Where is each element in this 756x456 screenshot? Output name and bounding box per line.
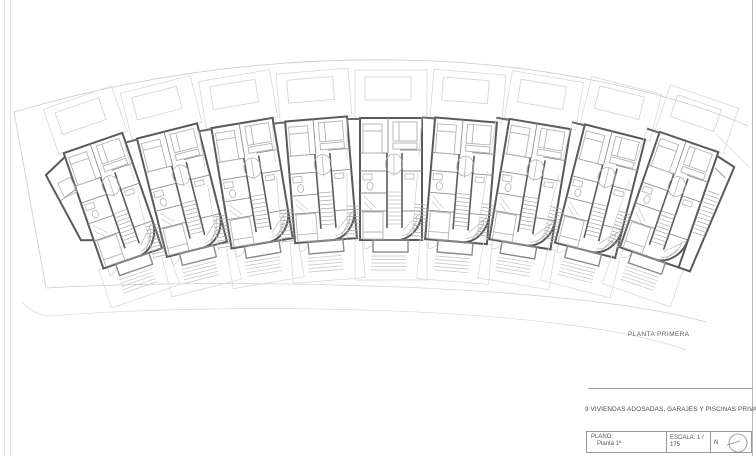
drawing-sheet: PLANTA PRIMERA 9 VIVIENDAS ADOSADAS, GAR… <box>0 0 756 456</box>
site-boundary-right-edge <box>716 134 750 168</box>
plan-caption: PLANTA PRIMERA <box>628 331 756 338</box>
north-label: N <box>714 440 718 446</box>
titleblock-rule <box>588 388 753 389</box>
site-boundary-left-edge <box>14 112 46 288</box>
project-title: 9 VIVIENDAS ADOSADAS, GARAJES Y PISCINAS… <box>585 406 753 413</box>
escala-label: ESCALA: 1 / 175 <box>670 435 710 449</box>
house-unit-7 <box>470 69 584 289</box>
titleblock-cell-escala: ESCALA: 1 / 175 <box>667 432 711 452</box>
plano-label: PLANO: <box>591 434 666 441</box>
house-unit-3 <box>191 70 305 290</box>
house-unit-5 <box>347 70 427 280</box>
titleblock-cell-plano: PLANO: Planta 1ª <box>587 432 667 452</box>
house-unit-6 <box>409 69 506 285</box>
house-unit-9 <box>595 82 753 311</box>
site-boundary-bottom-outer <box>22 302 686 350</box>
titleblock-table: PLANO: Planta 1ª ESCALA: 1 / 175 N <box>586 431 752 453</box>
site-boundary-bottom-inner <box>46 284 706 322</box>
plano-value: Planta 1ª <box>591 441 666 448</box>
housing-units <box>25 68 752 314</box>
site-boundary <box>14 60 750 350</box>
north-compass-icon <box>724 432 750 454</box>
titleblock-cell-north: N <box>711 432 751 452</box>
house-unit-1 <box>25 86 179 314</box>
